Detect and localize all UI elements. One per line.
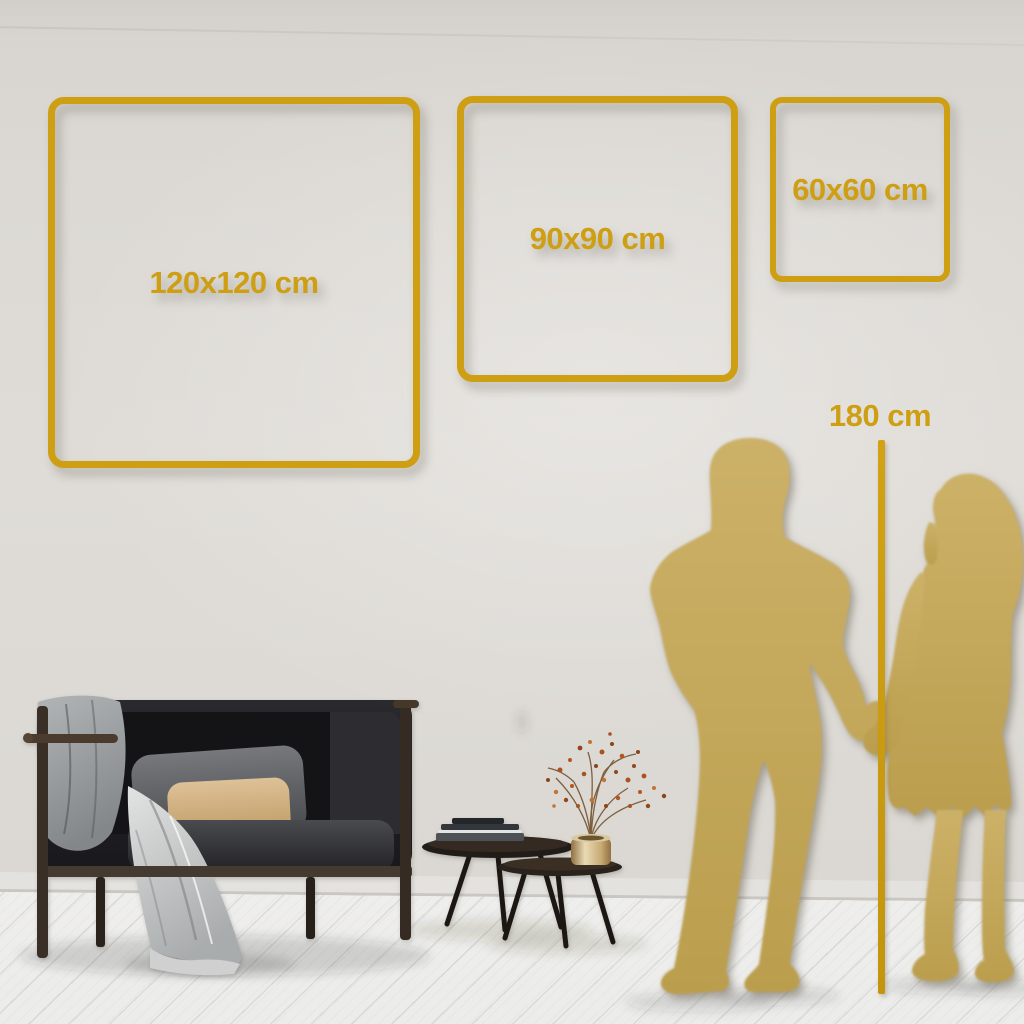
height-reference-line — [878, 440, 885, 994]
books-stack — [436, 818, 524, 841]
size-frame-60-label: 60x60 cm — [792, 172, 928, 208]
height-reference-label: 180 cm — [810, 398, 950, 434]
woman-back-leg — [975, 810, 1014, 982]
couple-silhouette — [650, 438, 1023, 994]
draped-blanket-illustration — [36, 696, 125, 851]
size-frame-120: 120x120 cm — [48, 97, 420, 468]
woman-front-leg — [912, 810, 963, 981]
woman-hair-strand — [924, 522, 938, 565]
man-silhouette — [650, 438, 889, 994]
size-frame-90: 90x90 cm — [457, 96, 738, 382]
sofa-illustration — [23, 696, 419, 976]
size-frame-120-label: 120x120 cm — [149, 265, 318, 301]
size-guide-scene: 180 cm 120x120 cm 90x90 cm 60x60 cm — [0, 0, 1024, 1024]
size-frame-90-label: 90x90 cm — [530, 221, 666, 257]
size-frame-60: 60x60 cm — [770, 97, 950, 282]
